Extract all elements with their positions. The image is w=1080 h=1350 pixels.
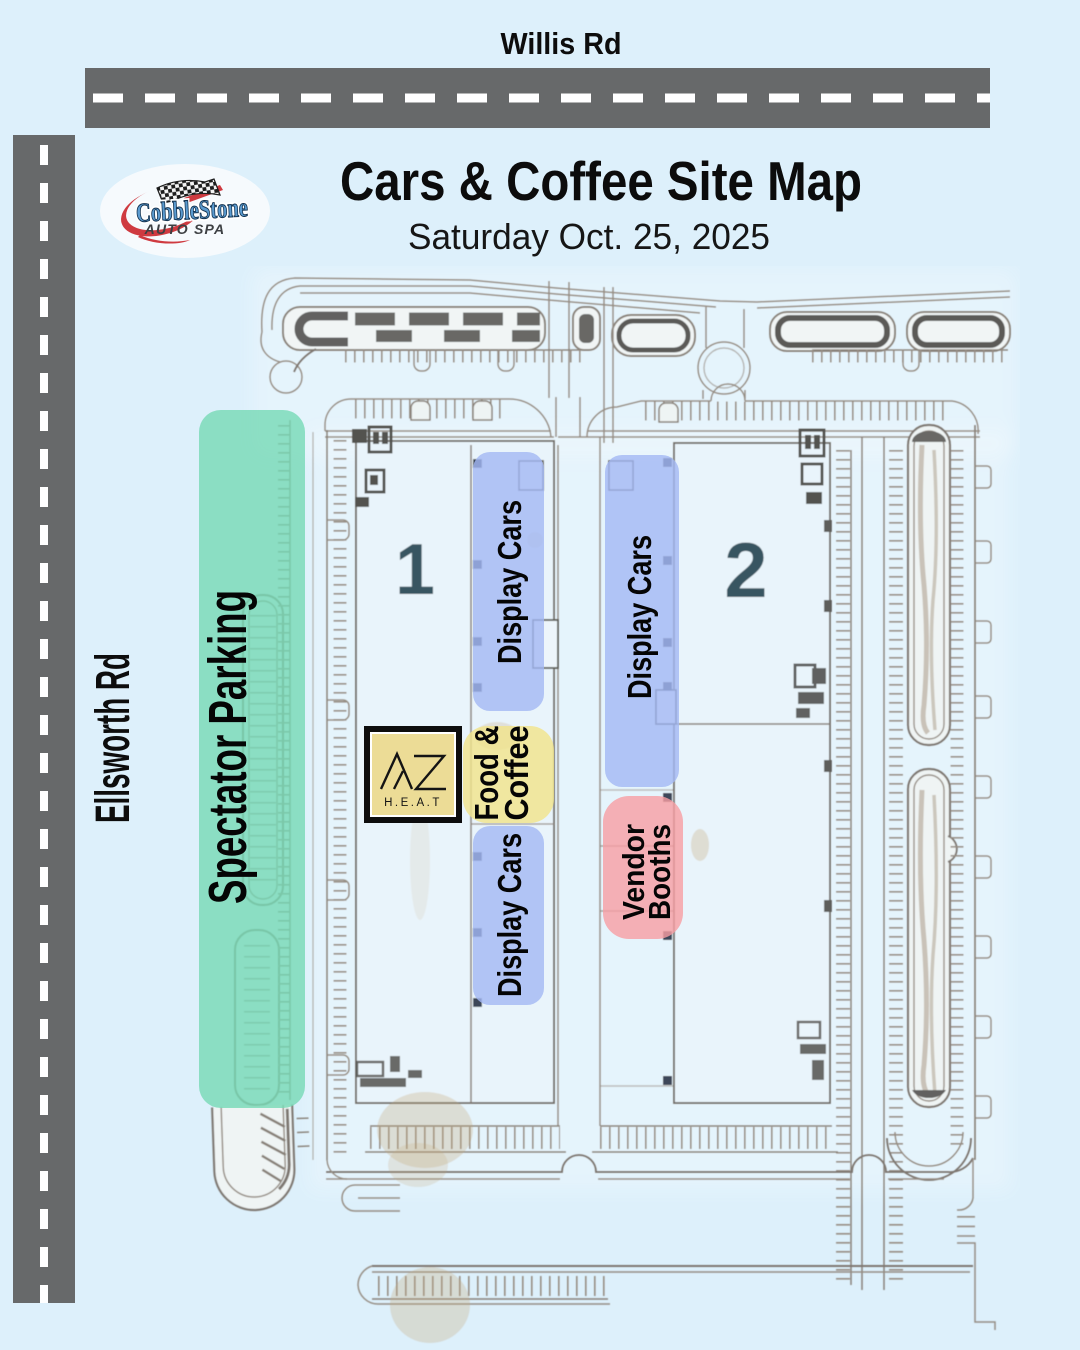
svg-text:Cars & Coffee Site Map: Cars & Coffee Site Map	[340, 150, 862, 212]
svg-text:Coffee: Coffee	[498, 726, 535, 821]
svg-text:Booths: Booths	[642, 824, 677, 920]
svg-text:Saturday Oct. 25, 2025: Saturday Oct. 25, 2025	[408, 216, 770, 257]
svg-text:Willis Rd: Willis Rd	[501, 26, 622, 61]
svg-text:2: 2	[724, 526, 767, 614]
svg-text:Display Cars: Display Cars	[491, 500, 528, 664]
svg-text:Display Cars: Display Cars	[491, 833, 528, 997]
svg-text:1: 1	[395, 530, 435, 610]
svg-text:Spectator Parking: Spectator Parking	[198, 590, 258, 904]
svg-text:AUTO SPA: AUTO SPA	[144, 221, 226, 237]
svg-text:H.E.A.T: H.E.A.T	[384, 797, 442, 809]
svg-text:Ellsworth Rd: Ellsworth Rd	[87, 653, 140, 823]
svg-text:Display Cars: Display Cars	[621, 535, 658, 699]
